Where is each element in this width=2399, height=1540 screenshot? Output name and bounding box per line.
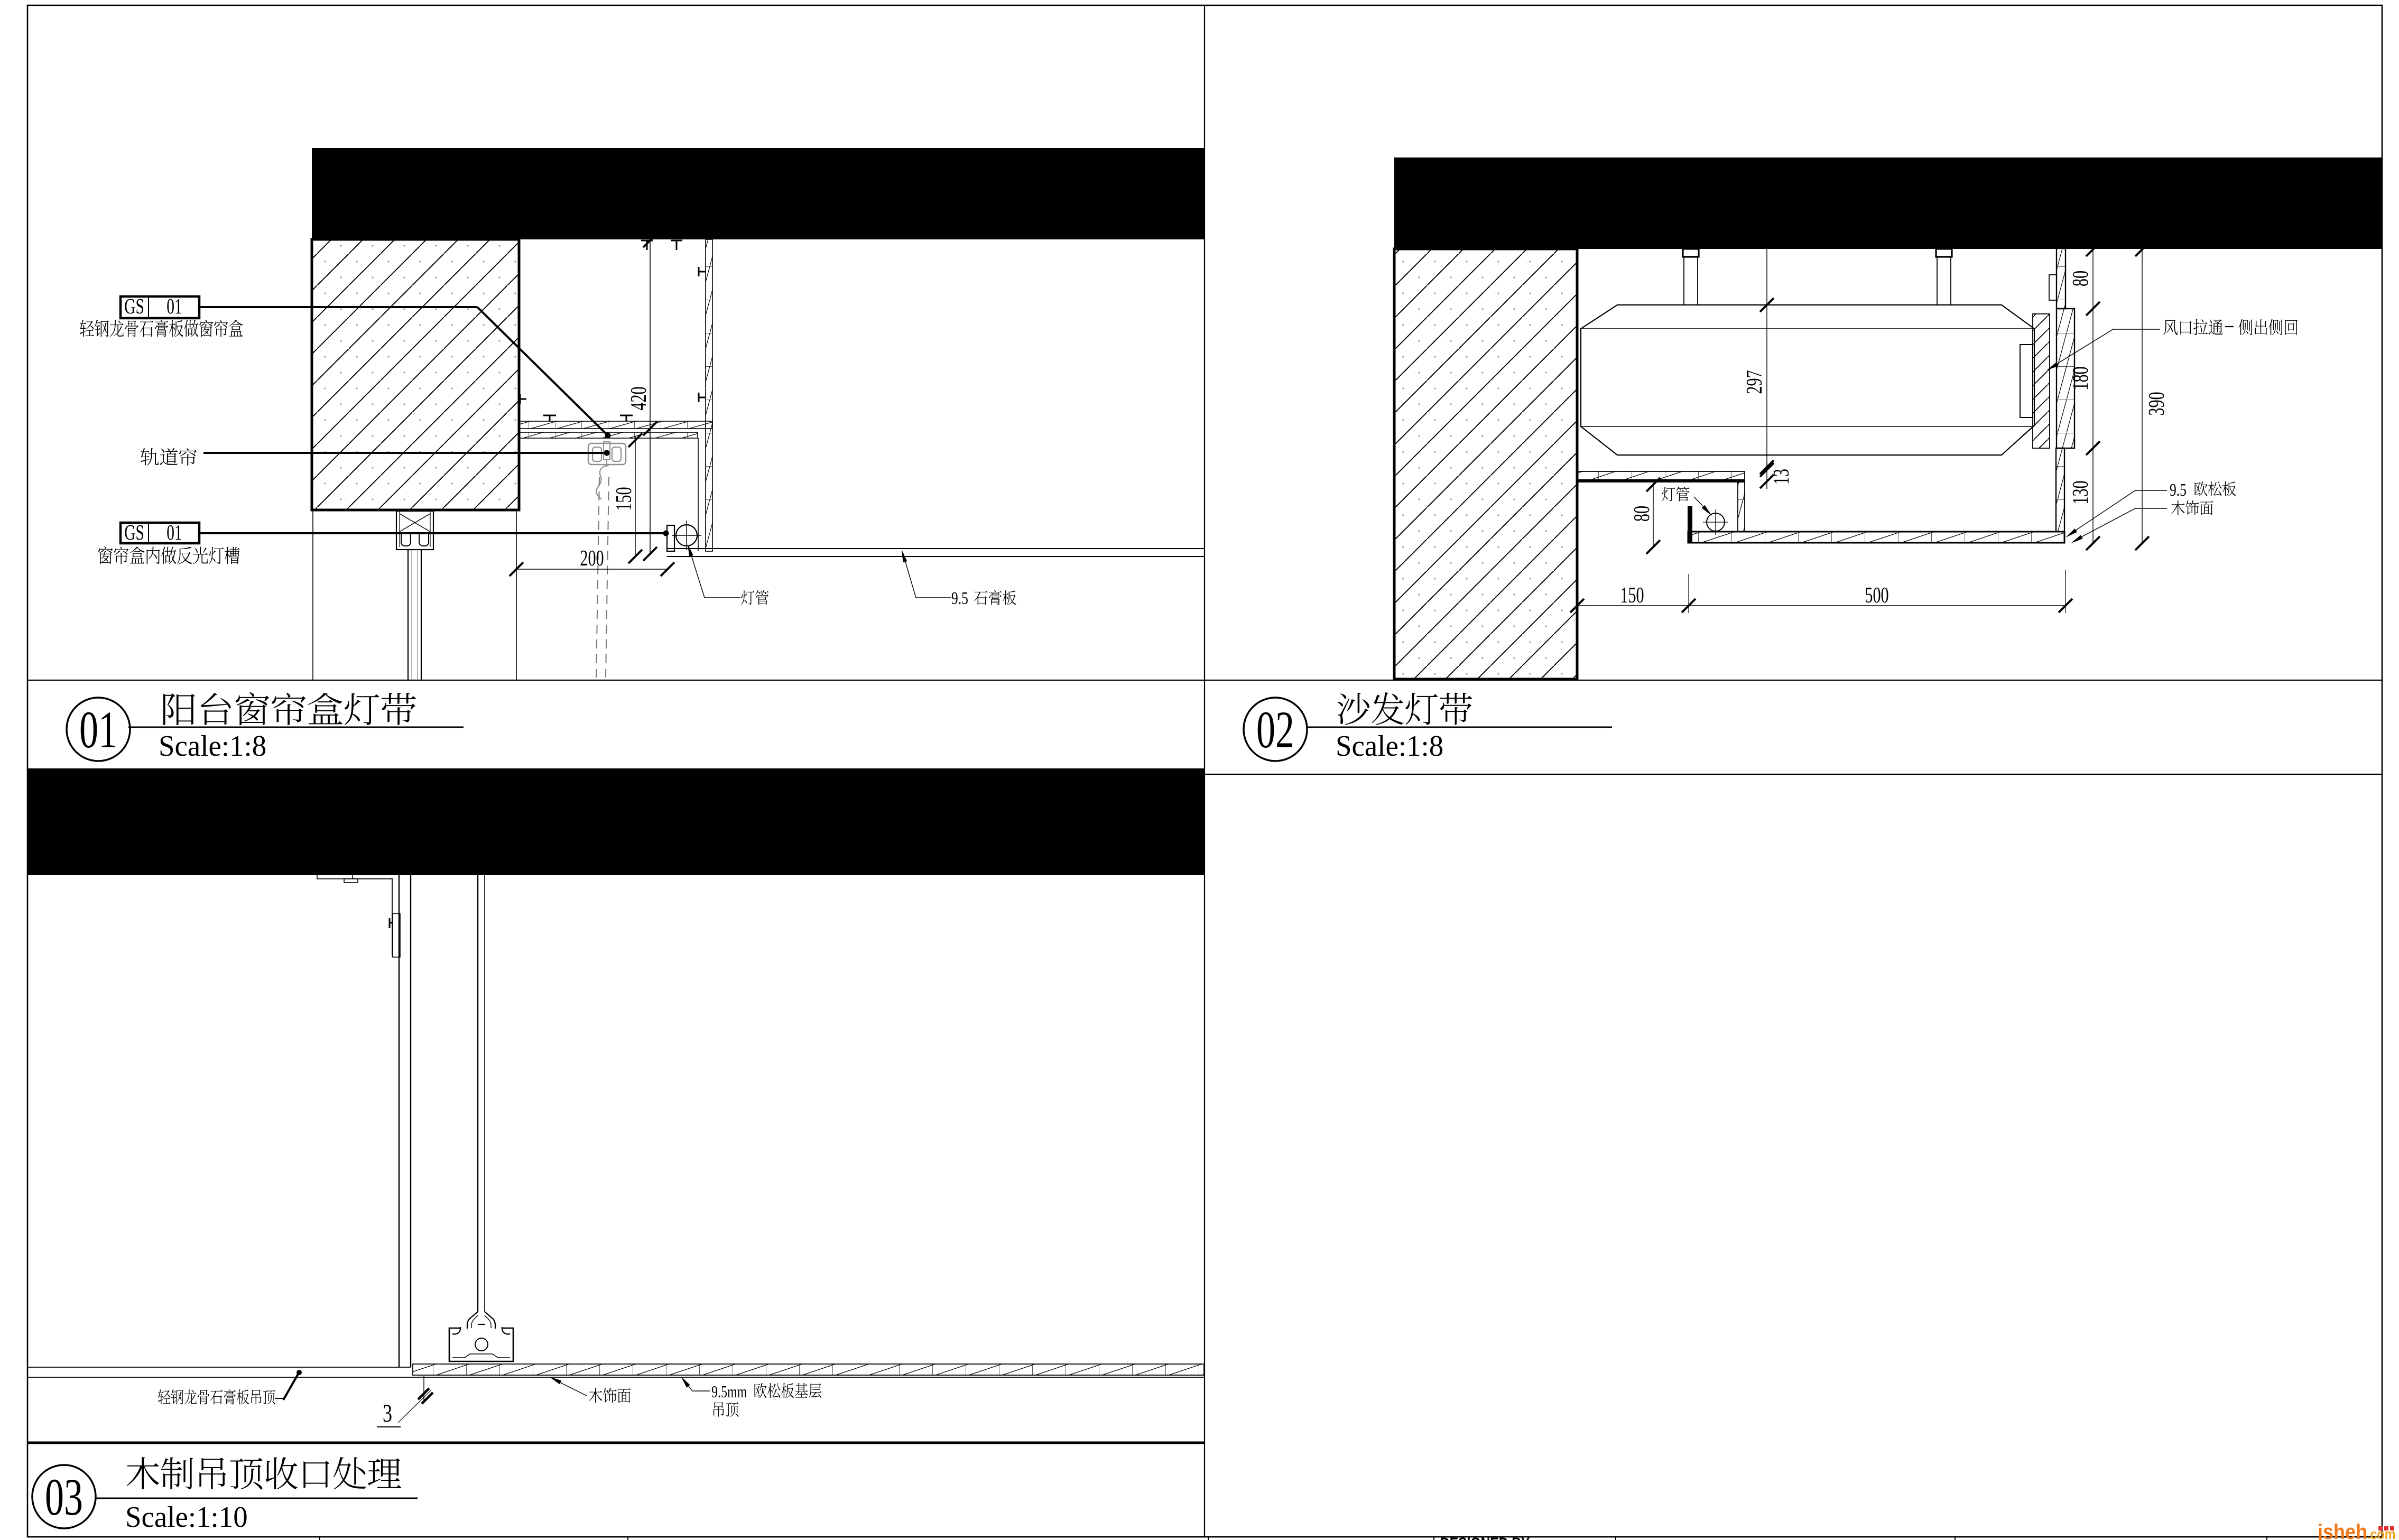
svg-text:9.5: 9.5	[2170, 479, 2187, 499]
svg-text:80: 80	[1629, 506, 1654, 522]
svg-text:GS: GS	[124, 294, 144, 318]
svg-text:200: 200	[580, 545, 604, 570]
svg-text:jsheh: jsheh	[2317, 1520, 2367, 1540]
svg-text:180: 180	[2068, 366, 2092, 390]
svg-text:Scale:1:8: Scale:1:8	[1336, 730, 1443, 763]
svg-text:130: 130	[2068, 480, 2092, 504]
svg-text:150: 150	[611, 487, 636, 511]
svg-text:3: 3	[383, 1399, 392, 1427]
svg-text:13: 13	[1768, 469, 1793, 485]
svg-text:02: 02	[1256, 700, 1294, 758]
svg-text:Scale:1:8: Scale:1:8	[159, 730, 266, 763]
svg-text:297: 297	[1742, 370, 1766, 394]
svg-text:9.5mm: 9.5mm	[711, 1383, 747, 1402]
svg-text:500: 500	[1865, 582, 1888, 607]
svg-text:Scale:1:10: Scale:1:10	[125, 1501, 248, 1534]
svg-text:DESIGNED BY: DESIGNED BY	[1440, 1534, 1530, 1540]
svg-text:150: 150	[1620, 582, 1644, 607]
svg-text:01: 01	[79, 700, 117, 758]
svg-text:420: 420	[626, 386, 651, 410]
svg-text:03: 03	[45, 1467, 83, 1526]
svg-text:01: 01	[166, 520, 182, 544]
svg-text:9.5: 9.5	[951, 588, 968, 608]
svg-text:80: 80	[2068, 271, 2092, 286]
svg-text:GS: GS	[124, 520, 144, 544]
svg-text:01: 01	[166, 294, 182, 318]
svg-text:390: 390	[2144, 392, 2169, 415]
